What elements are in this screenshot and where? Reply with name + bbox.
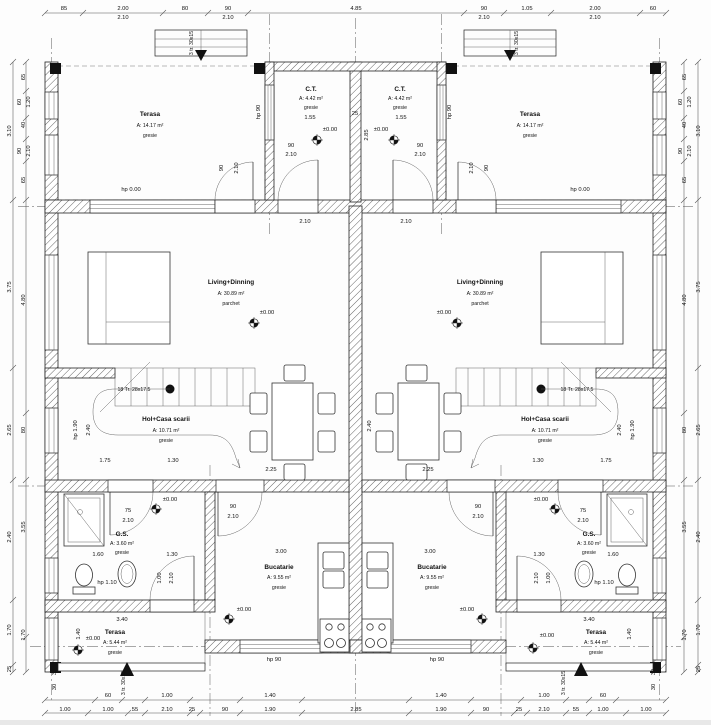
dim-label: 2.10	[472, 514, 483, 520]
room-name: Terasa	[520, 111, 541, 118]
dim-label: 1.75	[99, 458, 110, 464]
dim-label: 1.30	[167, 458, 178, 464]
dim-label: 1.30	[166, 552, 177, 558]
dim-label: 3.00	[275, 549, 286, 555]
window-hol-left	[45, 408, 58, 453]
ext-steps-label: 3 tr. 30x15	[121, 671, 127, 695]
dim-label: 60	[678, 99, 684, 105]
dim-label: 2.10	[161, 707, 172, 713]
dim-label: 2.10	[534, 572, 540, 583]
room-area: A: 5.44 m²	[103, 640, 127, 646]
dim-label: 1.70	[696, 624, 702, 635]
opening-kitchen-door-right	[447, 480, 495, 492]
entry-arrow-top-left	[195, 50, 207, 61]
window-terracebottom-right	[653, 618, 666, 660]
room-terasa-bottom-left: Terasa A: 5.44 m² gresie	[103, 629, 127, 656]
dim-label: 3.55	[682, 521, 688, 532]
room-floor: gresie	[582, 550, 596, 556]
dim-label: 2.10	[234, 162, 240, 173]
ext-steps-label: 3 tr. 30x15	[189, 31, 195, 55]
dim-label: 1.70	[7, 624, 13, 635]
dim-label: 2.10	[577, 518, 588, 524]
dim-label: 4.80	[21, 294, 27, 305]
level-label: ±0.00	[86, 636, 100, 642]
toilet	[76, 564, 93, 586]
exterior-steps-top-left	[155, 30, 247, 61]
room-ct-right: C.T. A: 4.42 m² gresie	[388, 86, 412, 111]
dim-label: 1.60	[92, 552, 103, 558]
dim-label: 85	[61, 6, 67, 12]
dim-label: 2.40	[86, 424, 92, 435]
dim-label: 2.25	[422, 467, 433, 473]
dim-label: 2.85	[364, 129, 370, 140]
dim-label: 90	[222, 707, 228, 713]
dim-label: 3.40	[116, 617, 127, 623]
door-ct-right	[393, 160, 433, 200]
opening-ct-door-left	[278, 200, 318, 213]
dim-label: 65	[21, 177, 27, 183]
dim-label: 2.40	[367, 420, 373, 431]
stairs-left	[93, 362, 255, 468]
window-terracebottom-left	[45, 618, 58, 660]
dim-label: 4.85	[350, 6, 361, 12]
level-label: ±0.00	[374, 127, 388, 133]
stove	[320, 619, 349, 652]
dim-label: 2.10	[26, 145, 32, 156]
washbasin	[118, 561, 136, 587]
dim-label: 2.10	[227, 514, 238, 520]
dim-label: 75	[125, 508, 131, 514]
sofa-right	[541, 252, 623, 344]
dim-label: 2.85	[350, 707, 361, 713]
dim-label: 1.55	[304, 115, 315, 121]
level-label: ±0.00	[237, 607, 251, 613]
window-kitchen-left	[240, 640, 322, 653]
dim-label: 2.10	[169, 572, 175, 583]
opening-ct-door-right	[393, 200, 433, 213]
sink	[323, 552, 344, 569]
wall-ct-party	[350, 62, 361, 202]
dim-label: 2.10	[469, 162, 475, 173]
room-floor: parchet	[471, 301, 489, 307]
window-terracewall-right-2	[653, 135, 666, 175]
kitchen-counter-right	[362, 543, 393, 652]
dim-label: 80	[182, 6, 188, 12]
room-name: C.T.	[305, 86, 317, 93]
ext-steps-label: 3 tr. 30x15	[561, 671, 567, 695]
dim-label: 2.10	[538, 707, 549, 713]
room-area: A: 4.42 m²	[299, 96, 323, 102]
window-ct-left	[265, 85, 274, 140]
dim-label: 90	[678, 148, 684, 154]
dim-label: 2.10	[285, 152, 296, 158]
hp-label: hp 90	[447, 105, 453, 120]
dim-label: 55	[573, 707, 579, 713]
wall-mid-left	[45, 480, 349, 492]
dim-label: 25	[696, 666, 702, 672]
level-label: ±0.00	[534, 497, 548, 503]
room-hol-right: Hol+Casa scarii A: 10.71 m² gresie	[521, 416, 569, 444]
dim-label: 2.40	[696, 531, 702, 542]
room-area: A: 30.89 m²	[467, 291, 494, 297]
room-name: Bucatarie	[417, 564, 447, 571]
dim-label: 1.40	[435, 693, 446, 699]
room-living-right: Living+Dinning A: 30.89 m² parchet	[457, 279, 503, 307]
dim-label: 1.60	[607, 552, 618, 558]
dim-label: 90	[475, 504, 481, 510]
dim-label: 90	[17, 148, 23, 154]
floor-plan: 85 2.00 2.10 80 90 2.10 4.85 90 2.10 1.0…	[0, 0, 711, 720]
dim-label: 65	[21, 74, 27, 80]
room-area: A: 3.60 m²	[577, 541, 601, 547]
room-bucatarie-right: Bucatarie A: 9.55 m² gresie	[417, 564, 447, 591]
hp-label: hp 90	[430, 657, 445, 663]
dim-label: 90	[481, 6, 487, 12]
room-terasa-top-left: Terasa A: 14.17 m² gresie	[137, 111, 164, 139]
dim-label: 1.70	[21, 629, 27, 640]
toilet	[619, 564, 636, 586]
dim-label: 40	[682, 122, 688, 128]
room-area: A: 4.42 m²	[388, 96, 412, 102]
dim-label: 3.10	[696, 125, 702, 136]
wall-party	[349, 206, 362, 653]
dim-label: 1.00	[546, 572, 552, 583]
dim-label: 3.55	[21, 521, 27, 532]
room-name: Bucatarie	[264, 564, 294, 571]
room-bucatarie-left: Bucatarie A: 9.55 m² gresie	[264, 564, 294, 591]
dim-label: 80	[682, 427, 688, 433]
level-label: ±0.00	[460, 607, 474, 613]
dim-label: 60	[17, 99, 23, 105]
room-name: G.S.	[583, 531, 596, 538]
dim-label: 1.00	[59, 707, 70, 713]
room-name: C.T.	[394, 86, 406, 93]
level-label: ±0.00	[260, 310, 274, 316]
room-area: A: 14.17 m²	[137, 123, 164, 129]
dim-label: 2.00	[589, 6, 600, 12]
window-terracewall-left-2	[45, 135, 58, 175]
dim-label: 2.40	[617, 424, 623, 435]
hp-label: hp 1.10	[594, 580, 613, 586]
hp-label: hp 90	[256, 105, 262, 120]
door-gs-left	[110, 492, 153, 535]
room-area: A: 5.44 m²	[584, 640, 608, 646]
dim-label: 90	[219, 165, 225, 171]
dim-label: 1.40	[264, 693, 275, 699]
dim-label: 65	[682, 74, 688, 80]
dim-label: 2.10	[222, 15, 233, 21]
dim-label: 30	[52, 669, 58, 675]
dim-label: 2.65	[696, 424, 702, 435]
dim-label: 30	[651, 684, 657, 690]
washbasin	[575, 561, 593, 587]
room-floor: gresie	[538, 438, 552, 444]
window-living-left	[45, 255, 58, 350]
stairs-label: 18 Tr. 28x17.5	[561, 387, 594, 393]
room-floor: gresie	[115, 550, 129, 556]
room-terasa-bottom-right: Terasa A: 5.44 m² gresie	[584, 629, 608, 656]
ext-steps-label: 3 tr. 30x15	[514, 31, 520, 55]
room-floor: parchet	[222, 301, 240, 307]
door-kitchen-left	[218, 492, 262, 536]
dim-label: 1.20	[26, 96, 32, 107]
stairs-right	[456, 362, 618, 468]
wall-gs-kitchen-right	[496, 492, 506, 600]
hp-label: hp 1.90	[630, 420, 636, 439]
room-terasa-top-right: Terasa A: 14.17 m² gresie	[517, 111, 544, 139]
dim-label: 55	[132, 707, 138, 713]
dim-label: 25	[189, 707, 195, 713]
opening-entry-door-right	[517, 600, 561, 612]
window-top-left	[90, 200, 215, 213]
room-floor: gresie	[393, 105, 407, 111]
room-floor: gresie	[304, 105, 318, 111]
dim-label: 2.10	[478, 15, 489, 21]
stairs-label: 18 Tr. 28x17.5	[118, 387, 151, 393]
dim-label: 3.00	[424, 549, 435, 555]
dim-label: 4.80	[682, 294, 688, 305]
wall-gs-kitchen-left	[205, 492, 215, 600]
dim-label: 3.75	[7, 281, 13, 292]
opening-terrace-door-right	[456, 200, 496, 213]
dim-label: 1.30	[532, 458, 543, 464]
dim-label: 1.05	[521, 6, 532, 12]
room-area: A: 9.55 m²	[420, 575, 444, 581]
room-name: Terasa	[105, 629, 126, 636]
room-name: Terasa	[586, 629, 607, 636]
room-area: A: 9.55 m²	[267, 575, 291, 581]
hp-label: hp 90	[267, 657, 282, 663]
dim-label: 1.30	[533, 552, 544, 558]
room-floor: gresie	[425, 585, 439, 591]
window-top-right	[496, 200, 621, 213]
dim-label: 60	[650, 6, 656, 12]
wall-terrace-right	[653, 62, 666, 200]
door-ct-left	[278, 160, 318, 200]
kitchen-counter-left	[318, 543, 349, 652]
dining-table	[272, 383, 313, 460]
walls	[45, 62, 666, 672]
dim-label: 1.00	[161, 693, 172, 699]
dim-label: 2.10	[400, 219, 411, 225]
dim-label: 1.00	[157, 572, 163, 583]
room-name: G.S.	[116, 531, 129, 538]
dim-label: 2.10	[117, 15, 128, 21]
dim-label: 3.40	[583, 617, 594, 623]
dim-label: 1.00	[597, 707, 608, 713]
opening-terrace-door-left	[215, 200, 255, 213]
room-name: Terasa	[140, 111, 161, 118]
dim-label: 90	[417, 143, 423, 149]
hp-label: hp 1.90	[73, 420, 79, 439]
room-floor: gresie	[108, 650, 122, 656]
dining-table	[398, 383, 439, 460]
wall-hol-left	[45, 368, 115, 378]
floor-plan-svg: 85 2.00 2.10 80 90 2.10 4.85 90 2.10 1.0…	[0, 0, 711, 720]
dim-label: 90	[225, 6, 231, 12]
terrace-top-left-slab	[58, 66, 265, 200]
opening-gs-door-left	[108, 480, 153, 492]
terrace-top-right-slab	[446, 66, 653, 200]
room-name: Living+Dinning	[457, 279, 503, 286]
hp-label: hp 1.10	[97, 580, 116, 586]
room-floor: gresie	[272, 585, 286, 591]
dim-label: 3.10	[7, 125, 13, 136]
dim-label: 60	[600, 693, 606, 699]
dim-label: 2.00	[117, 6, 128, 12]
room-hol-left: Hol+Casa scarii A: 10.71 m² gresie	[142, 416, 190, 444]
room-area: A: 14.17 m²	[517, 123, 544, 129]
room-floor: gresie	[523, 133, 537, 139]
level-label: ±0.00	[437, 310, 451, 316]
dining-set-right	[376, 365, 461, 480]
window-hol-right	[653, 408, 666, 453]
dim-label: 1.75	[600, 458, 611, 464]
level-label: ±0.00	[323, 127, 337, 133]
window-kitchen-right	[389, 640, 471, 653]
dim-label: 75	[580, 508, 586, 514]
room-floor: gresie	[143, 133, 157, 139]
dim-label: 2.65	[7, 424, 13, 435]
dim-label: 1.40	[76, 628, 82, 639]
dim-label: 90	[484, 165, 490, 171]
dim-label: 1.90	[435, 707, 446, 713]
room-name: Hol+Casa scarii	[142, 416, 190, 423]
wall-ct-top	[265, 62, 446, 71]
room-area: A: 3.60 m²	[110, 541, 134, 547]
dim-label: 1.00	[538, 693, 549, 699]
dim-label: 2.10	[122, 518, 133, 524]
dim-label: 3.75	[696, 281, 702, 292]
dim-label: 30	[651, 669, 657, 675]
dim-label: 1.00	[640, 707, 651, 713]
dim-label: 40	[21, 122, 27, 128]
dim-label: 25	[516, 707, 522, 713]
window-gs-left	[45, 558, 58, 593]
dim-label: 2.40	[7, 531, 13, 542]
dim-label: 1.40	[627, 628, 633, 639]
dim-label: 90	[483, 707, 489, 713]
window-gs-right	[653, 558, 666, 593]
opening-kitchen-door-left	[216, 480, 264, 492]
dim-label: 60	[105, 693, 111, 699]
opening-gs-door-right	[558, 480, 603, 492]
room-area: A: 10.71 m²	[532, 428, 559, 434]
dim-label: 30	[52, 684, 58, 690]
opening-entry-door-left	[150, 600, 194, 612]
dim-label: 1.55	[395, 115, 406, 121]
exterior-steps-top-right	[464, 30, 556, 61]
sink	[367, 552, 388, 569]
hp-label: hp 0.00	[121, 187, 140, 193]
dim-label: 2.10	[299, 219, 310, 225]
dim-label: 25	[352, 111, 358, 117]
window-ct-right	[437, 85, 446, 140]
room-area: A: 10.71 m²	[153, 428, 180, 434]
dim-label: 1.20	[687, 96, 693, 107]
room-floor: gresie	[159, 438, 173, 444]
dim-label: 25	[7, 666, 13, 672]
dim-label: 2.25	[265, 467, 276, 473]
level-label: ±0.00	[540, 633, 554, 639]
hp-label: hp 0.00	[570, 187, 589, 193]
window-terracewall-left-1	[45, 92, 58, 119]
dim-label: 90	[288, 143, 294, 149]
door-kitchen-right	[449, 492, 493, 536]
wall-hol-right	[596, 368, 666, 378]
window-living-right	[653, 255, 666, 350]
wall-terrace-left	[45, 62, 58, 200]
dim-label: 65	[682, 177, 688, 183]
door-terrace-right	[458, 162, 496, 200]
sofa-left	[88, 252, 170, 344]
dim-label: 2.10	[589, 15, 600, 21]
dim-label: 2.10	[687, 145, 693, 156]
room-name: Hol+Casa scarii	[521, 416, 569, 423]
dim-label: 2.10	[414, 152, 425, 158]
room-floor: gresie	[589, 650, 603, 656]
dining-set-left	[250, 365, 335, 480]
room-area: A: 30.89 m²	[218, 291, 245, 297]
room-name: Living+Dinning	[208, 279, 254, 286]
dim-label: 90	[230, 504, 236, 510]
dim-label: 1.70	[682, 629, 688, 640]
room-ct-left: C.T. A: 4.42 m² gresie	[299, 86, 323, 111]
dim-label: 1.00	[102, 707, 113, 713]
room-living-left: Living+Dinning A: 30.89 m² parchet	[208, 279, 254, 307]
dim-label: 1.90	[264, 707, 275, 713]
wall-mid-right	[362, 480, 666, 492]
level-label: ±0.00	[163, 497, 177, 503]
stove	[362, 619, 391, 652]
dim-label: 80	[21, 427, 27, 433]
window-terracewall-right-1	[653, 92, 666, 119]
